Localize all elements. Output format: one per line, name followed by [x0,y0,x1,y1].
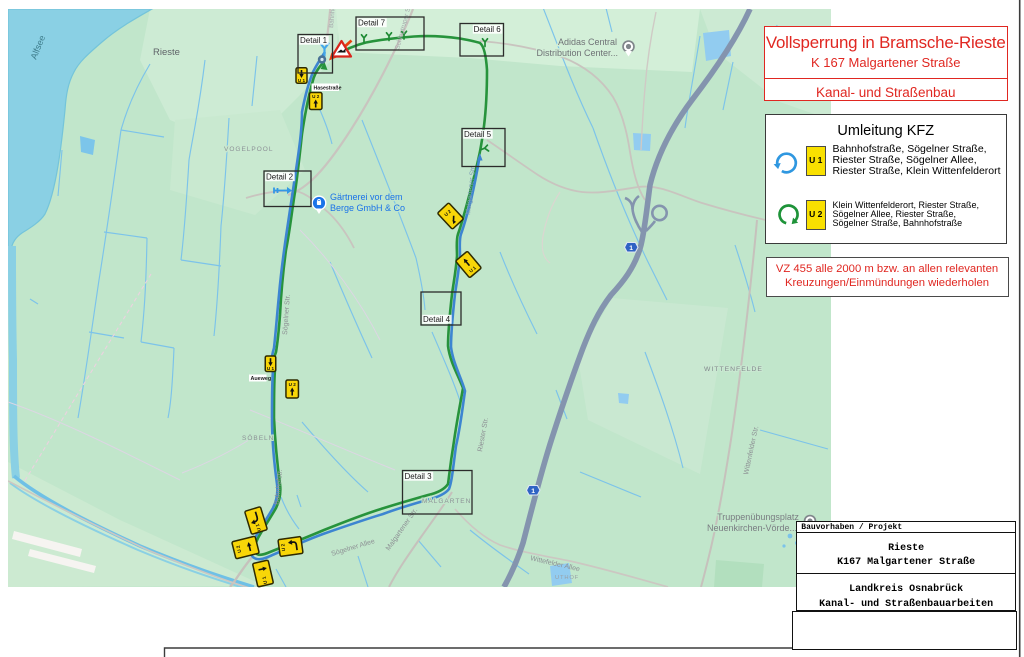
svg-text:1: 1 [629,245,633,252]
svg-text:U 2: U 2 [312,94,320,99]
svg-text:Hasestraße: Hasestraße [314,85,342,91]
svg-text:U 2: U 2 [280,543,287,552]
svg-text:Truppenübungsplatz: Truppenübungsplatz [717,512,799,522]
svg-text:U 2: U 2 [289,382,297,387]
svg-text:MALGARTEN: MALGARTEN [422,498,471,505]
svg-text:Detail 7: Detail 7 [358,18,386,27]
svg-text:Detail 1: Detail 1 [300,36,328,45]
svg-text:VOGELPOOL: VOGELPOOL [224,146,273,153]
svg-text:1: 1 [531,488,535,495]
svg-text:Rieste: Rieste [153,47,180,58]
svg-text:Aueweg: Aueweg [251,376,272,382]
svg-text:Adidas Central: Adidas Central [558,37,617,47]
svg-text:Detail 5: Detail 5 [464,130,492,139]
svg-text:Gärtnerei vor dem: Gärtnerei vor dem [330,192,403,202]
svg-text:Neuenkirchen-Vörde...: Neuenkirchen-Vörde... [707,523,797,533]
svg-text:Distribution Center...: Distribution Center... [536,48,618,58]
svg-text:Detail 3: Detail 3 [405,472,433,481]
svg-text:U 1: U 1 [267,366,275,371]
svg-text:Detail 2: Detail 2 [266,172,294,181]
svg-text:Detail 4: Detail 4 [423,315,451,324]
svg-text:U 1: U 1 [298,78,306,83]
svg-text:SÖBELN: SÖBELN [242,434,274,442]
svg-text:Berge GmbH & Co: Berge GmbH & Co [330,203,405,213]
svg-text:UTHOF: UTHOF [555,575,579,581]
svg-text:Detail 6: Detail 6 [474,25,502,34]
svg-text:WITTENFELDE: WITTENFELDE [704,366,763,373]
